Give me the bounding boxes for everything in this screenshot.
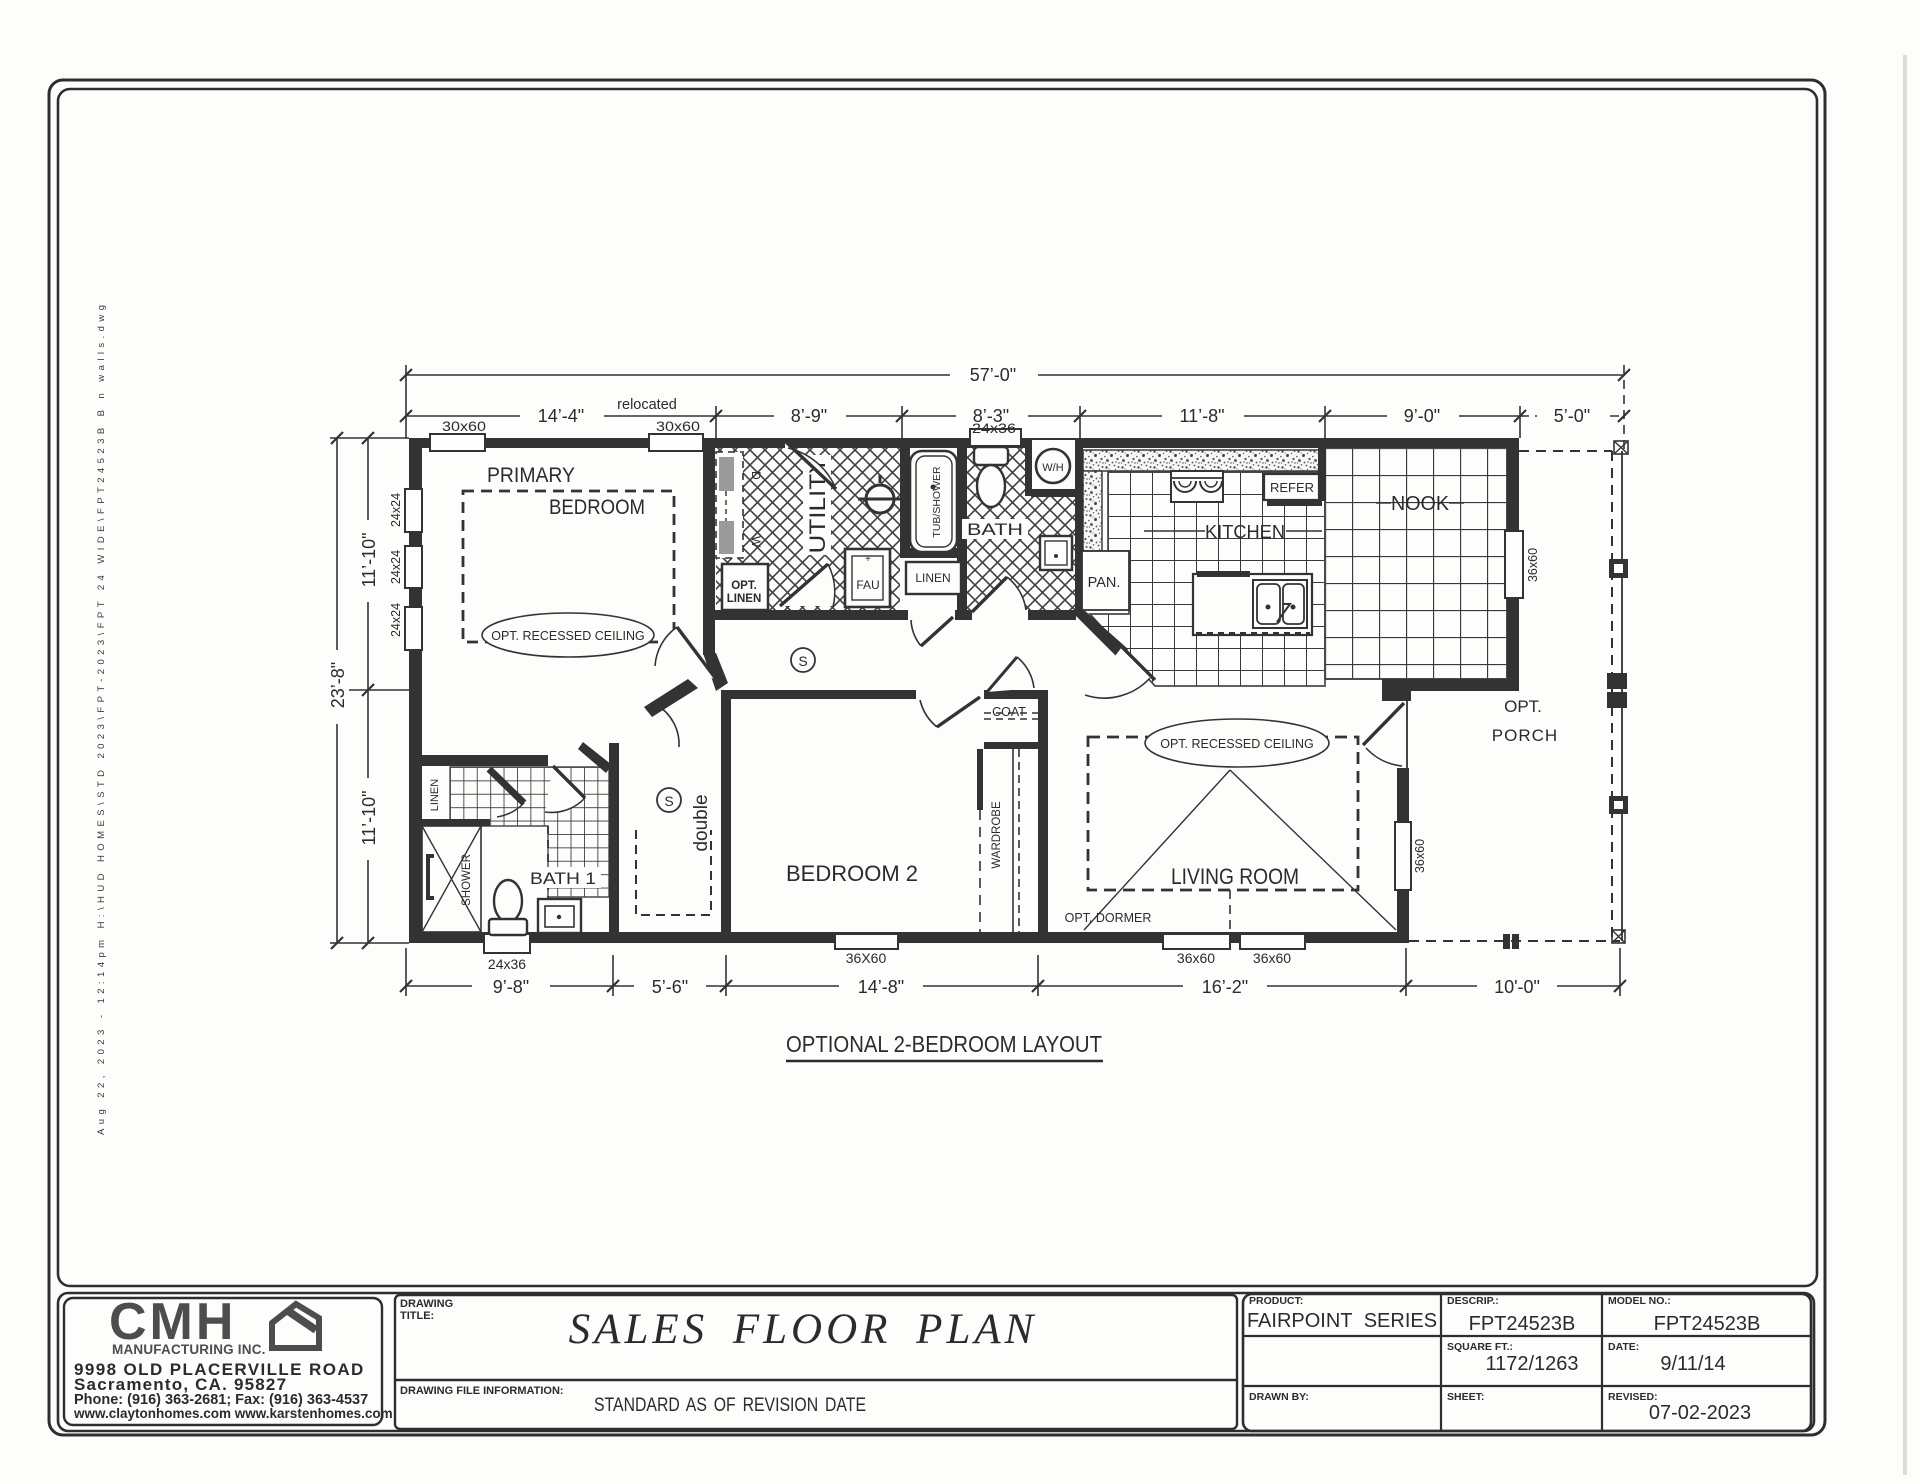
svg-text:STANDARD AS OF REVISION DATE: STANDARD AS OF REVISION DATE bbox=[594, 1395, 866, 1416]
svg-text:36x60: 36x60 bbox=[1253, 950, 1291, 966]
svg-text:BATH 1: BATH 1 bbox=[530, 870, 596, 888]
svg-text:36x60: 36x60 bbox=[1526, 548, 1540, 582]
svg-text:9’-0": 9’-0" bbox=[1404, 406, 1440, 426]
svg-text:DRAWING: DRAWING bbox=[400, 1298, 453, 1310]
svg-text:24x24: 24x24 bbox=[389, 550, 403, 584]
svg-text:24x24: 24x24 bbox=[389, 603, 403, 637]
svg-text:OPT. RECESSED CEILING: OPT. RECESSED CEILING bbox=[491, 629, 645, 643]
svg-text:Aug 22, 2023 - 12:14pm H:\HUD: Aug 22, 2023 - 12:14pm H:\HUD HOMES\STD … bbox=[96, 305, 107, 1135]
svg-text:COAT: COAT bbox=[992, 705, 1026, 719]
svg-text:BATH: BATH bbox=[967, 521, 1023, 539]
svg-text:www.claytonhomes.com www.kars: www.claytonhomes.com www.karstenhomes.co… bbox=[73, 1406, 393, 1421]
svg-text:23’-8": 23’-8" bbox=[328, 662, 348, 708]
svg-text:24x36: 24x36 bbox=[488, 956, 526, 972]
svg-text:36X60: 36X60 bbox=[846, 950, 887, 966]
svg-text:SQUARE FT.:: SQUARE FT.: bbox=[1447, 1341, 1513, 1353]
svg-text:LINEN: LINEN bbox=[915, 571, 950, 585]
svg-text:REFER: REFER bbox=[1270, 480, 1314, 495]
svg-text:16’-2": 16’-2" bbox=[1202, 977, 1248, 997]
svg-text:MANUFACTURING INC.: MANUFACTURING INC. bbox=[112, 1342, 266, 1357]
svg-text:+: + bbox=[865, 554, 871, 565]
svg-text:SALES FLOOR PLAN: SALES FLOOR PLAN bbox=[569, 1306, 1038, 1353]
svg-text:24x24: 24x24 bbox=[389, 493, 403, 527]
svg-text:24x36: 24x36 bbox=[972, 421, 1016, 436]
svg-text:LIVING ROOM: LIVING ROOM bbox=[1171, 864, 1299, 889]
svg-text:1172/1263: 1172/1263 bbox=[1485, 1353, 1578, 1375]
svg-text:DESCRIP.:: DESCRIP.: bbox=[1447, 1295, 1499, 1307]
svg-text:KITCHEN: KITCHEN bbox=[1205, 522, 1285, 542]
svg-text:W: W bbox=[749, 536, 763, 548]
svg-text:OPTIONAL 2-BEDROOM LAYOUT: OPTIONAL 2-BEDROOM LAYOUT bbox=[786, 1031, 1102, 1057]
svg-text:LINEN: LINEN bbox=[429, 779, 441, 811]
svg-text:OPT. DORMER: OPT. DORMER bbox=[1065, 911, 1152, 925]
svg-text:FPT24523B: FPT24523B bbox=[1654, 1313, 1761, 1335]
svg-text:LINEN: LINEN bbox=[727, 593, 762, 605]
svg-text:PRIMARY: PRIMARY bbox=[487, 464, 575, 487]
svg-text:PAN.: PAN. bbox=[1088, 575, 1121, 591]
svg-text:10'-0": 10'-0" bbox=[1494, 977, 1540, 997]
svg-text:WARDROBE: WARDROBE bbox=[991, 801, 1003, 869]
svg-text:DRAWN BY:: DRAWN BY: bbox=[1249, 1391, 1309, 1403]
svg-text:FAU: FAU bbox=[856, 578, 879, 592]
svg-text:36x60: 36x60 bbox=[1177, 950, 1215, 966]
svg-text:SHEET:: SHEET: bbox=[1447, 1391, 1484, 1403]
svg-text:TUB/SHOWER: TUB/SHOWER bbox=[931, 466, 943, 538]
svg-text:MODEL NO.:: MODEL NO.: bbox=[1608, 1295, 1671, 1307]
svg-text:D: D bbox=[749, 471, 763, 480]
svg-text:11’-8": 11’-8" bbox=[1179, 406, 1224, 426]
svg-text:FAIRPOINT SERIES: FAIRPOINT SERIES bbox=[1247, 1310, 1437, 1332]
svg-text:5’-6": 5’-6" bbox=[652, 977, 688, 997]
svg-text:OPT.: OPT. bbox=[731, 580, 757, 592]
svg-text:BEDROOM: BEDROOM bbox=[549, 496, 645, 519]
svg-text:57’-0": 57’-0" bbox=[970, 365, 1016, 385]
svg-text:NOOK: NOOK bbox=[1391, 493, 1450, 515]
svg-text:5’-0": 5’-0" bbox=[1554, 406, 1590, 426]
svg-text:30x60: 30x60 bbox=[442, 419, 486, 434]
svg-text:BEDROOM 2: BEDROOM 2 bbox=[786, 861, 918, 886]
svg-text:14’-4": 14’-4" bbox=[538, 406, 584, 426]
svg-text:relocated: relocated bbox=[617, 397, 677, 413]
svg-text:14’-8": 14’-8" bbox=[858, 977, 904, 997]
svg-text:W/H: W/H bbox=[1042, 462, 1063, 474]
svg-text:OPT.: OPT. bbox=[1504, 697, 1542, 716]
svg-text:PRODUCT:: PRODUCT: bbox=[1249, 1295, 1303, 1307]
svg-text:DATE:: DATE: bbox=[1608, 1341, 1639, 1353]
svg-text:S: S bbox=[798, 653, 807, 669]
svg-text:07-02-2023: 07-02-2023 bbox=[1649, 1402, 1751, 1424]
svg-text:OPT. RECESSED CEILING: OPT. RECESSED CEILING bbox=[1160, 737, 1314, 751]
svg-text:9/11/14: 9/11/14 bbox=[1660, 1353, 1725, 1375]
svg-text:SHOWER: SHOWER bbox=[461, 854, 473, 906]
svg-text:S: S bbox=[664, 793, 673, 809]
svg-text:PORCH: PORCH bbox=[1492, 726, 1558, 745]
svg-text:30x60: 30x60 bbox=[656, 419, 700, 434]
svg-text:11’-10": 11’-10" bbox=[359, 532, 379, 587]
svg-text:9’-8": 9’-8" bbox=[493, 977, 529, 997]
svg-text:double: double bbox=[691, 794, 712, 851]
svg-text:TITLE:: TITLE: bbox=[400, 1310, 434, 1322]
svg-text:36x60: 36x60 bbox=[1413, 839, 1427, 873]
svg-text:11’-10": 11’-10" bbox=[359, 790, 379, 845]
svg-text:8’-9": 8’-9" bbox=[791, 406, 827, 426]
svg-text:FPT24523B: FPT24523B bbox=[1469, 1313, 1576, 1335]
svg-text:DRAWING FILE INFORMATION:: DRAWING FILE INFORMATION: bbox=[400, 1385, 564, 1397]
